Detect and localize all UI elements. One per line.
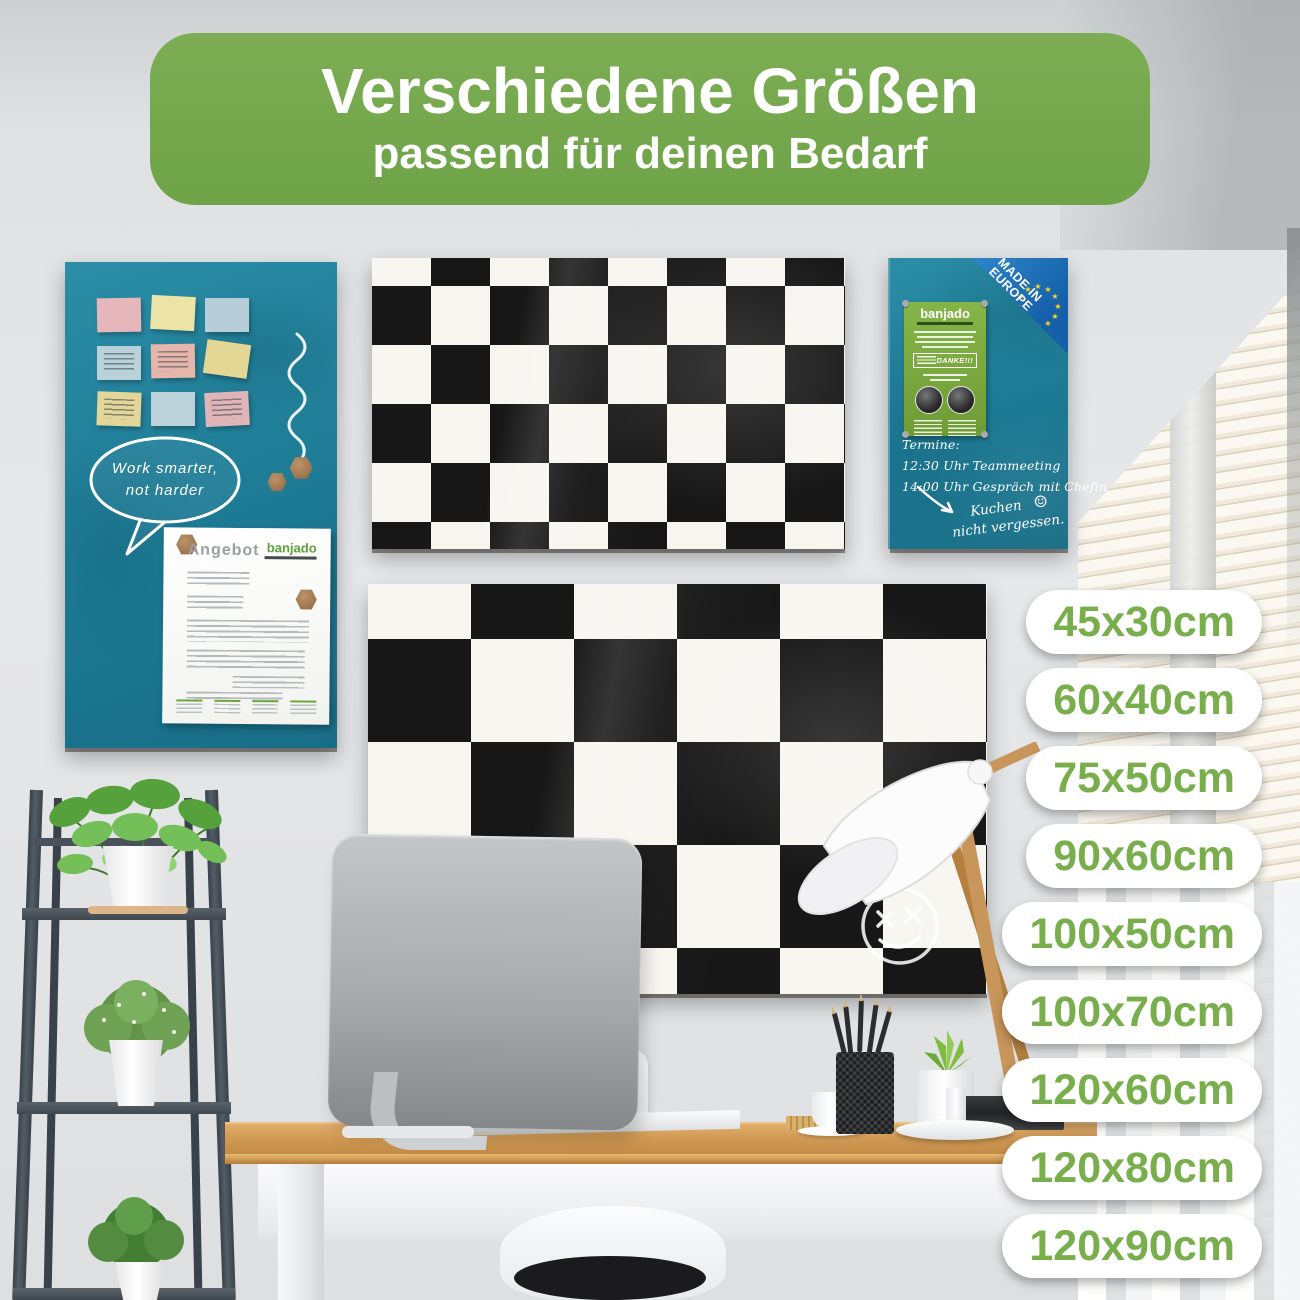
size-badge: 100x50cm [1002,902,1262,966]
note-scribble [211,398,243,420]
size-badge: 45x30cm [1026,590,1262,654]
smiley-icon: ☺ [1032,491,1049,512]
flyer: banjado DANKE!!! [904,302,986,436]
svg-text:★: ★ [1051,292,1058,301]
banner-title: Verschiedene Größen [150,55,1150,127]
note-scribble [104,353,135,373]
sticky-note [204,391,250,427]
sticky-note [203,339,251,379]
window-edge [1287,228,1300,658]
fern-plant [76,1192,196,1268]
plant-saucer [88,906,188,914]
flyer-text-line [922,346,968,348]
flyer-highlight-lines [917,356,936,365]
flyer-highlight-text: DANKE!!! [936,356,973,365]
document-text-lines [187,571,249,588]
shelf-rail [12,790,43,1300]
reminder-line2: nicht vergessen. [951,511,1065,541]
size-badge: 90x60cm [1026,824,1262,888]
chair-cushion [514,1256,706,1300]
dog-photo [915,386,943,414]
svg-text:★: ★ [1054,302,1061,311]
note-scribble [103,398,134,419]
speech-bubble-line1: Work smarter, [90,460,240,477]
svg-text:★: ★ [1044,319,1051,328]
size-badge-list: 45x30cm 60x40cm 75x50cm 90x60cm 100x50cm… [960,590,1262,1278]
document-brand-tagline [265,556,317,559]
desk-leg [278,1164,324,1300]
document-footer-column [176,699,202,713]
magnet-dot [902,300,909,307]
flyer-highlight-box: DANKE!!! [913,353,977,367]
sticky-note [151,392,195,426]
dog-photo [947,386,975,414]
document-footer-column [252,700,278,714]
sticky-note [97,346,141,380]
imac-stand [366,1072,494,1150]
offer-document: Angebot banjado [162,527,331,724]
size-badge: 100x70cm [1002,980,1262,1044]
document-text-lines [187,619,309,642]
svg-text:★: ★ [1024,319,1031,328]
flyer-text-line [914,331,976,333]
size-badge: 60x40cm [1026,668,1262,732]
sticky-note [151,344,196,379]
flyer-brand-logo: banjado [920,307,970,320]
banner-subtitle: passend für deinen Bedarf [150,127,1150,181]
squiggle-doodle-icon [279,328,311,470]
imac-foot [342,1126,474,1138]
sticky-note [97,298,142,333]
svg-text:★: ★ [1017,312,1024,321]
document-brand-logo: banjado [267,540,317,555]
flyer-text-line [917,336,973,338]
office-scene: Work smarter, not harder Angebot banjado [0,0,1300,1300]
svg-text:★: ★ [1034,322,1041,331]
teal-glass-board-left: Work smarter, not harder Angebot banjado [65,262,337,748]
headline-banner: Verschiedene Größen passend für deinen B… [150,33,1150,205]
cork-magnet [267,472,287,492]
note-scribble [157,351,188,372]
cork-magnet [295,588,317,610]
document-footer-column [290,700,316,714]
checkered-glass-board-small [372,258,845,549]
size-badge: 120x90cm [1002,1214,1262,1278]
document-footer-column [214,700,240,714]
schedule-item-1: 12:30 Uhr Teammeeting [902,455,1107,476]
size-badge: 75x50cm [1026,746,1262,810]
teal-glass-board-right: MADE IN EUROPE ★★★ ★★★ ★★★ ★★★ banjado [888,258,1068,549]
flyer-subheading-line [930,379,960,381]
document-title: Angebot [188,541,260,560]
magnet-dot [981,300,988,307]
flyer-heading-line [923,374,967,377]
svg-text:★: ★ [1051,312,1058,321]
flyer-text-line [915,341,975,343]
document-total-lines [232,676,304,689]
sticky-note [96,391,141,427]
schedule-heading: Termine: [902,434,1107,455]
sticky-note [205,298,249,332]
document-text-lines [187,595,243,609]
arrow-doodle-icon [912,484,962,520]
flyer-tagline [917,322,973,325]
plant-pot [104,1040,168,1106]
size-badge: 120x60cm [1002,1058,1262,1122]
sticky-note [150,295,196,331]
size-badge: 120x80cm [1002,1136,1262,1200]
document-table-lines [187,649,305,670]
speech-bubble-line2: not harder [90,482,240,499]
